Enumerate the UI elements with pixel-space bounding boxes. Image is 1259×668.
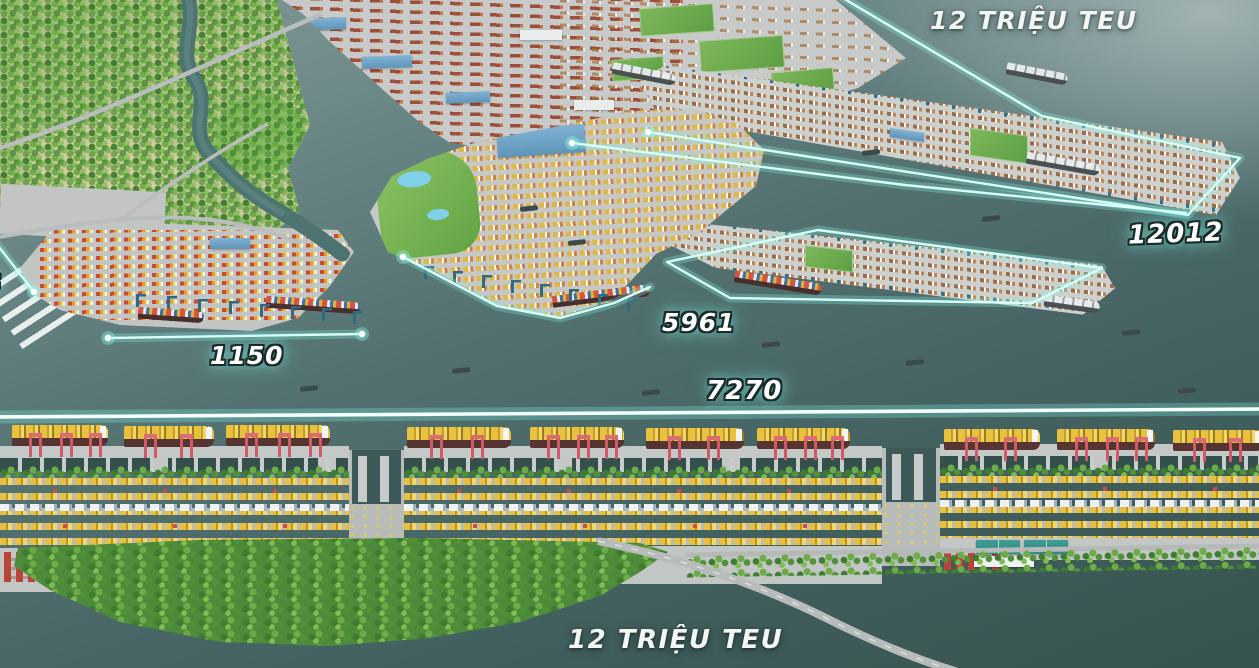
label-berth-12012: 12012 [1128,219,1224,248]
small-boat [642,389,660,396]
sts-crane [1193,438,1206,462]
small-boat [982,215,1000,222]
ship-bridge [736,429,742,441]
sts-crane [1106,437,1119,461]
ship-bridge [1032,430,1038,442]
quay-crane [482,275,492,288]
quay-crane [291,306,301,319]
quay-crane [353,311,363,324]
sts-crane [774,436,787,460]
label-capacity-bottom: 12 TRIỆU TEU [568,627,783,653]
cargo-ship [944,429,1040,450]
ship-bridge [322,426,328,438]
cargo-ship [407,427,511,448]
quay-crane [424,266,434,279]
cargo-ship [646,428,744,449]
quay-crane [229,301,239,314]
sts-crane [180,434,193,458]
quay-crane [198,299,208,312]
sts-crane [430,435,443,459]
small-boat [300,385,318,392]
sts-crane [1004,437,1017,461]
quay-crane [260,304,270,317]
sts-crane [605,435,618,459]
sts-crane [309,433,322,457]
quay-crane [136,294,146,307]
label-partial-left-edge: 6 [0,272,2,296]
cargo-ship [266,296,361,315]
label-berth-1150: 1150 [210,343,284,368]
cargo-ship [138,307,205,324]
ship-bridge [503,428,509,440]
sts-crane [965,437,978,461]
quay-crane [598,294,608,307]
cargo-ship [124,426,214,447]
sts-crane [29,433,42,457]
ship-bridge [1255,431,1259,443]
small-boat [862,149,880,156]
cargo-ship [1173,430,1259,451]
quay-crane [540,284,550,297]
small-boat [568,239,586,246]
port-masterplan-render: 12 TRIỆU TEU 12012 5961 1150 7270 6 12 T… [0,0,1259,668]
sts-crane [804,436,817,460]
small-boat [1122,329,1140,336]
small-boat [452,367,470,374]
sts-crane [547,435,560,459]
cargo-ship [1026,152,1101,177]
small-boat [906,359,924,366]
ship-bridge [206,427,212,439]
vessels-and-cranes [0,0,1259,668]
cargo-ship [734,270,823,296]
sts-crane [668,436,681,460]
sts-crane [1229,438,1242,462]
label-capacity-top: 12 TRIỆU TEU [930,8,1138,33]
quay-crane [453,271,463,284]
quay-crane [627,298,637,311]
cargo-ship [1043,294,1100,314]
small-boat [1178,387,1196,394]
quay-crane [511,280,521,293]
small-boat [520,205,538,212]
small-boat [762,341,780,348]
sts-crane [707,436,720,460]
quay-crane [569,289,579,302]
sts-crane [471,435,484,459]
label-berth-5961: 5961 [662,310,736,335]
sts-crane [278,433,291,457]
sts-crane [245,433,258,457]
sts-crane [60,433,73,457]
cargo-ship [1005,62,1068,86]
sts-crane [831,436,844,460]
sts-crane [577,435,590,459]
sts-crane [1135,437,1148,461]
quay-crane [322,308,332,321]
sts-crane [89,433,102,457]
cargo-ship [611,62,676,86]
quay-crane [167,296,177,309]
label-berth-7270: 7270 [706,378,782,404]
sts-crane [1075,437,1088,461]
sts-crane [144,434,157,458]
